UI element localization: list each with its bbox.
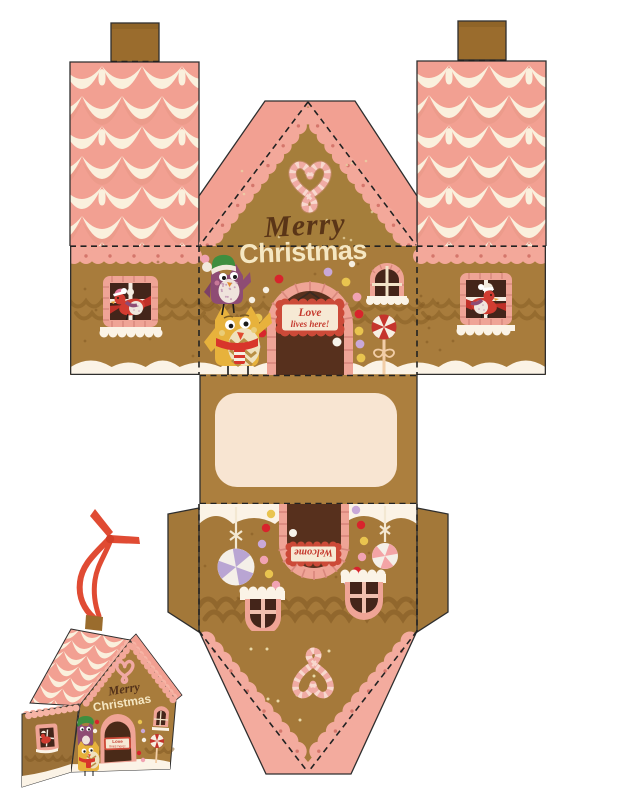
- svg-text:Love: Love: [298, 307, 322, 319]
- svg-text:lives here!: lives here!: [291, 319, 330, 329]
- svg-text:lives here!: lives here!: [110, 745, 126, 749]
- svg-text:Welcome: Welcome: [294, 547, 333, 558]
- svg-text:Christmas: Christmas: [239, 235, 368, 269]
- svg-text:Love: Love: [112, 739, 123, 744]
